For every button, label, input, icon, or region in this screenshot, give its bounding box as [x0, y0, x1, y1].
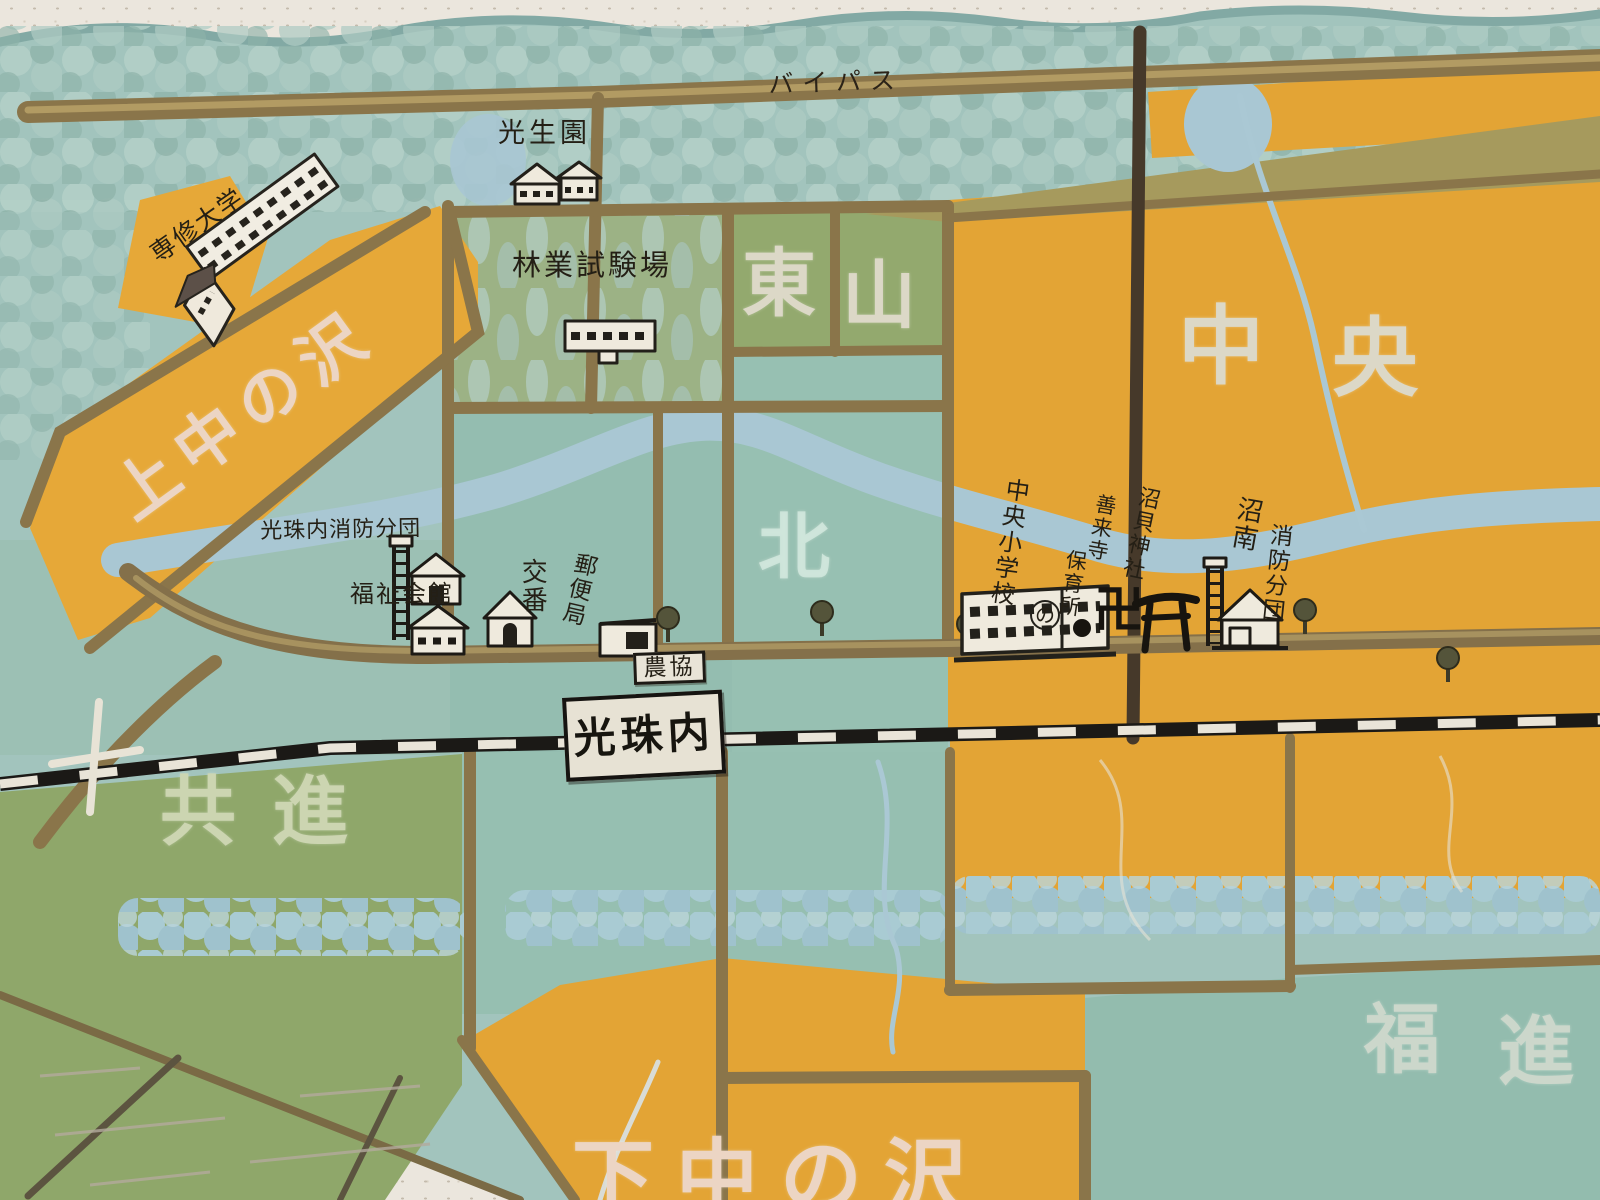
post-office-building: [600, 620, 656, 656]
forestry-station-label: 林業試験場: [512, 250, 672, 280]
road-h210: [448, 206, 948, 212]
region-right-orange-south: [950, 726, 1600, 898]
road-h352: [728, 350, 948, 352]
district-shimonakanosawa-label: 下中の沢: [572, 1136, 988, 1200]
district-chuo-label-1: 中: [1178, 302, 1264, 392]
map-canvas: [0, 0, 1600, 1200]
bypass-road-label: バイパス: [768, 67, 904, 98]
district-chuo-label-2: 央: [1332, 314, 1418, 404]
station-sign-text: 光珠内: [573, 710, 716, 761]
road-h408: [448, 406, 948, 408]
road-h990: [950, 986, 1290, 990]
agricultural-coop-label: 農協: [633, 650, 706, 685]
pond-topright: [1184, 76, 1272, 172]
welfare-hall-label: 福祉会館: [350, 582, 454, 607]
manji-icon: 卍: [1094, 584, 1144, 637]
station-sign-koshunai: 光珠内: [562, 690, 726, 782]
temple-dot-marker: [1073, 619, 1091, 637]
koseien-label: 光生園: [498, 120, 591, 148]
district-higashi-label: 東: [742, 246, 816, 324]
road-h1078: [722, 1076, 1085, 1078]
district-kyoshin-label: 共進: [160, 772, 384, 852]
tree-row-left: [118, 898, 466, 956]
police-box-label: 交番: [518, 558, 545, 614]
district-fukushin-label-2: 進: [1498, 1012, 1574, 1092]
district-yama-label: 山: [842, 258, 916, 336]
district-kita-label: 北: [758, 510, 830, 586]
district-fukushin-label-1: 福: [1364, 1000, 1440, 1080]
tree-row-right: [950, 876, 1600, 934]
painted-map-board: バイパス 光生園 専修大学 上中の沢 林業試験場 東 山 中 央 北 光珠内消防…: [0, 0, 1600, 1200]
koshunai-fire-brigade-label: 光珠内消防分団: [260, 517, 421, 543]
